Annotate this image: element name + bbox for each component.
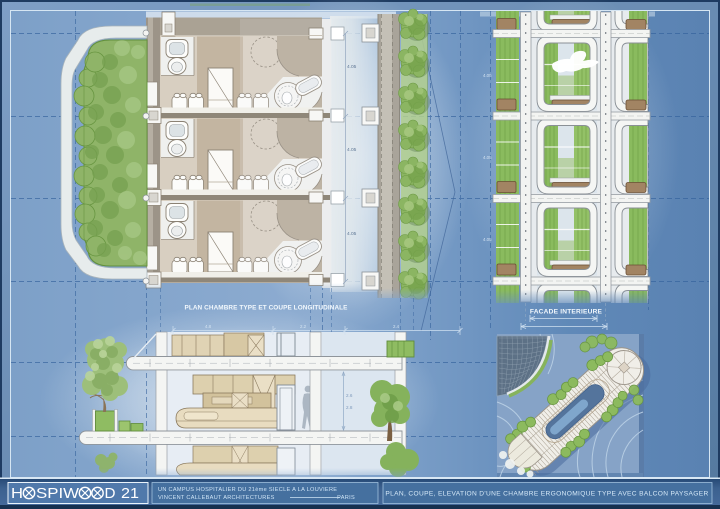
svg-text:H: H (11, 486, 23, 502)
svg-text:PLAN CHAMBRE TYPE ET COUPE LON: PLAN CHAMBRE TYPE ET COUPE LONGITUDINALE (184, 305, 348, 312)
svg-text:FACADE INTERIEURE: FACADE INTERIEURE (530, 309, 603, 316)
svg-text:D: D (105, 486, 116, 502)
svg-text:4.05: 4.05 (347, 147, 357, 153)
svg-text:PLAN, COUPE, ELEVATION D'UNE: PLAN, COUPE, ELEVATION D'UNE CHAMBRE ERG… (385, 491, 708, 498)
svg-text:2.4: 2.4 (393, 324, 400, 329)
svg-text:4.05: 4.05 (483, 73, 492, 78)
svg-text:UN CAMPUS HOSPITALIER DU 21ème: UN CAMPUS HOSPITALIER DU 21ème SIECLE A … (158, 487, 337, 493)
svg-text:4.05: 4.05 (347, 64, 357, 70)
svg-text:4.05: 4.05 (483, 237, 492, 242)
svg-text:VINCENT CALLEBAUT ARCHITECTURE: VINCENT CALLEBAUT ARCHITECTURES (158, 495, 275, 501)
svg-text:2.6: 2.6 (346, 393, 353, 398)
svg-text:4.05: 4.05 (483, 155, 492, 160)
svg-text:4.8: 4.8 (205, 324, 212, 329)
svg-text:2.2: 2.2 (300, 324, 307, 329)
svg-text:4.05: 4.05 (347, 231, 357, 237)
svg-text:2.8: 2.8 (346, 405, 353, 410)
svg-text:PARIS: PARIS (337, 495, 355, 501)
svg-text:SPIW: SPIW (36, 486, 79, 502)
svg-text:21: 21 (121, 486, 139, 502)
